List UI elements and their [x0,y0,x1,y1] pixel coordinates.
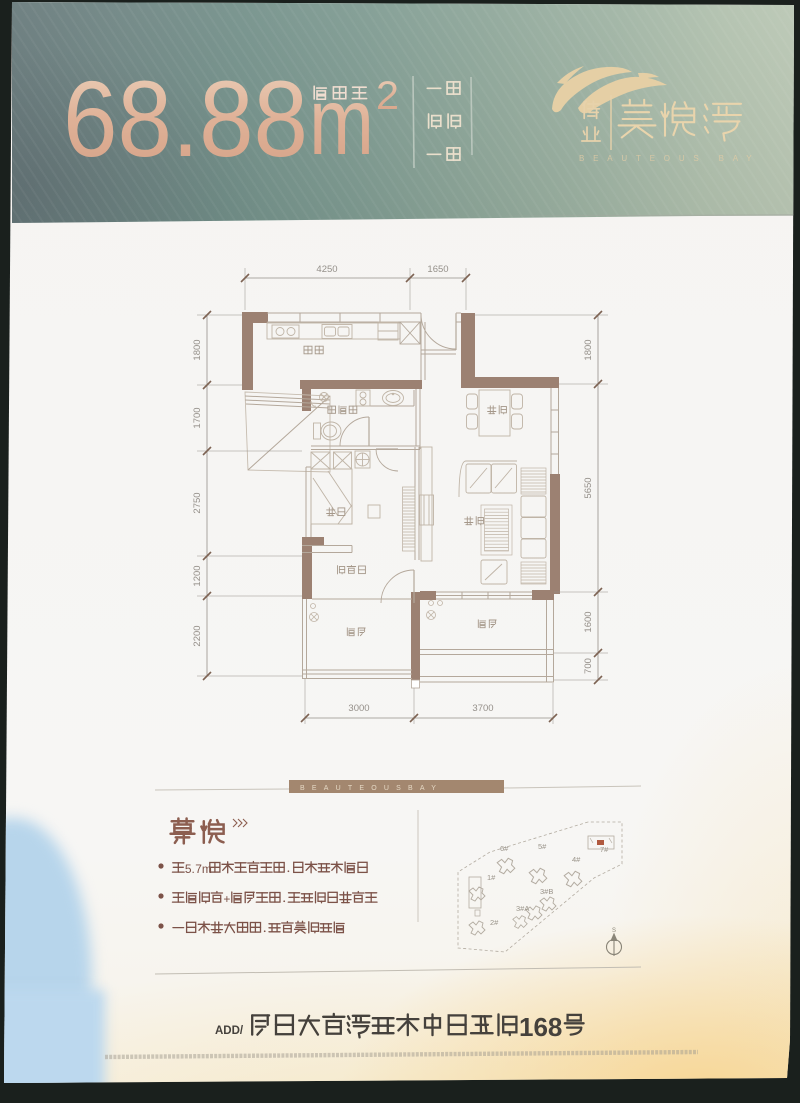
svg-text:1200: 1200 [192,565,203,586]
svg-text:7#: 7# [600,845,609,854]
svg-text:m: m [202,862,212,876]
svg-text:1800: 1800 [192,339,203,360]
svg-text:ADD/: ADD/ [215,1025,244,1037]
svg-text:6#: 6# [500,844,509,853]
svg-text:S: S [612,928,616,934]
svg-text:1800: 1800 [583,339,594,360]
svg-text:4250: 4250 [316,264,337,275]
svg-text:3700: 3700 [472,703,493,714]
svg-text:1650: 1650 [427,264,448,275]
svg-text:2#: 2# [490,918,499,927]
svg-text:3000: 3000 [348,703,369,714]
svg-text:700: 700 [583,658,594,674]
svg-text:3#A: 3#A [516,904,529,913]
svg-text:1600: 1600 [583,611,594,632]
svg-text:+: + [223,892,230,906]
svg-text:BEAUTEOUSBAY: BEAUTEOUSBAY [300,785,443,792]
svg-text:5650: 5650 [583,477,594,498]
svg-text:5#: 5# [538,842,547,851]
svg-text:2: 2 [376,74,399,118]
svg-text:168: 168 [519,1012,562,1042]
svg-text:1700: 1700 [192,407,203,428]
svg-text:3#B: 3#B [540,887,553,896]
svg-text:BEAUTEOUS BAY: BEAUTEOUS BAY [579,154,760,163]
svg-text:4#: 4# [572,855,581,864]
svg-text:2750: 2750 [192,492,203,513]
svg-text:2200: 2200 [192,625,203,646]
svg-text:1#: 1# [487,873,496,882]
svg-text:68.88: 68.88 [63,58,308,179]
svg-text:m: m [309,69,374,175]
